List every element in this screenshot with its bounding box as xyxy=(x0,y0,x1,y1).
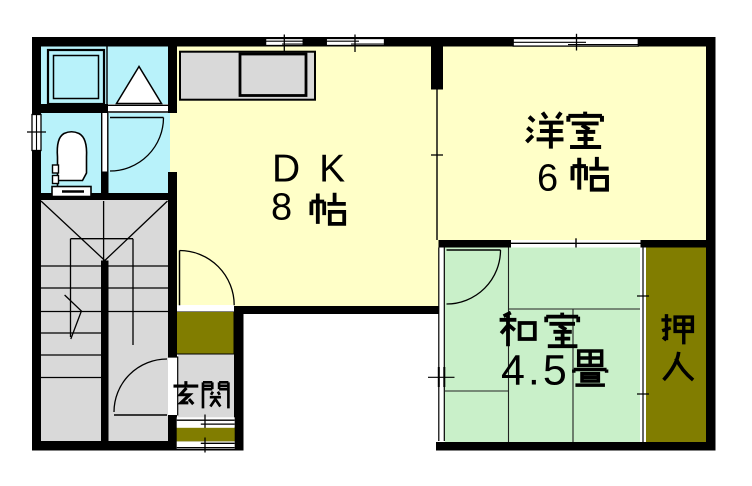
svg-text:6: 6 xyxy=(537,157,558,199)
svg-text:4.5: 4.5 xyxy=(501,347,570,395)
svg-text:8: 8 xyxy=(271,187,292,229)
svg-text:DK: DK xyxy=(272,148,364,191)
